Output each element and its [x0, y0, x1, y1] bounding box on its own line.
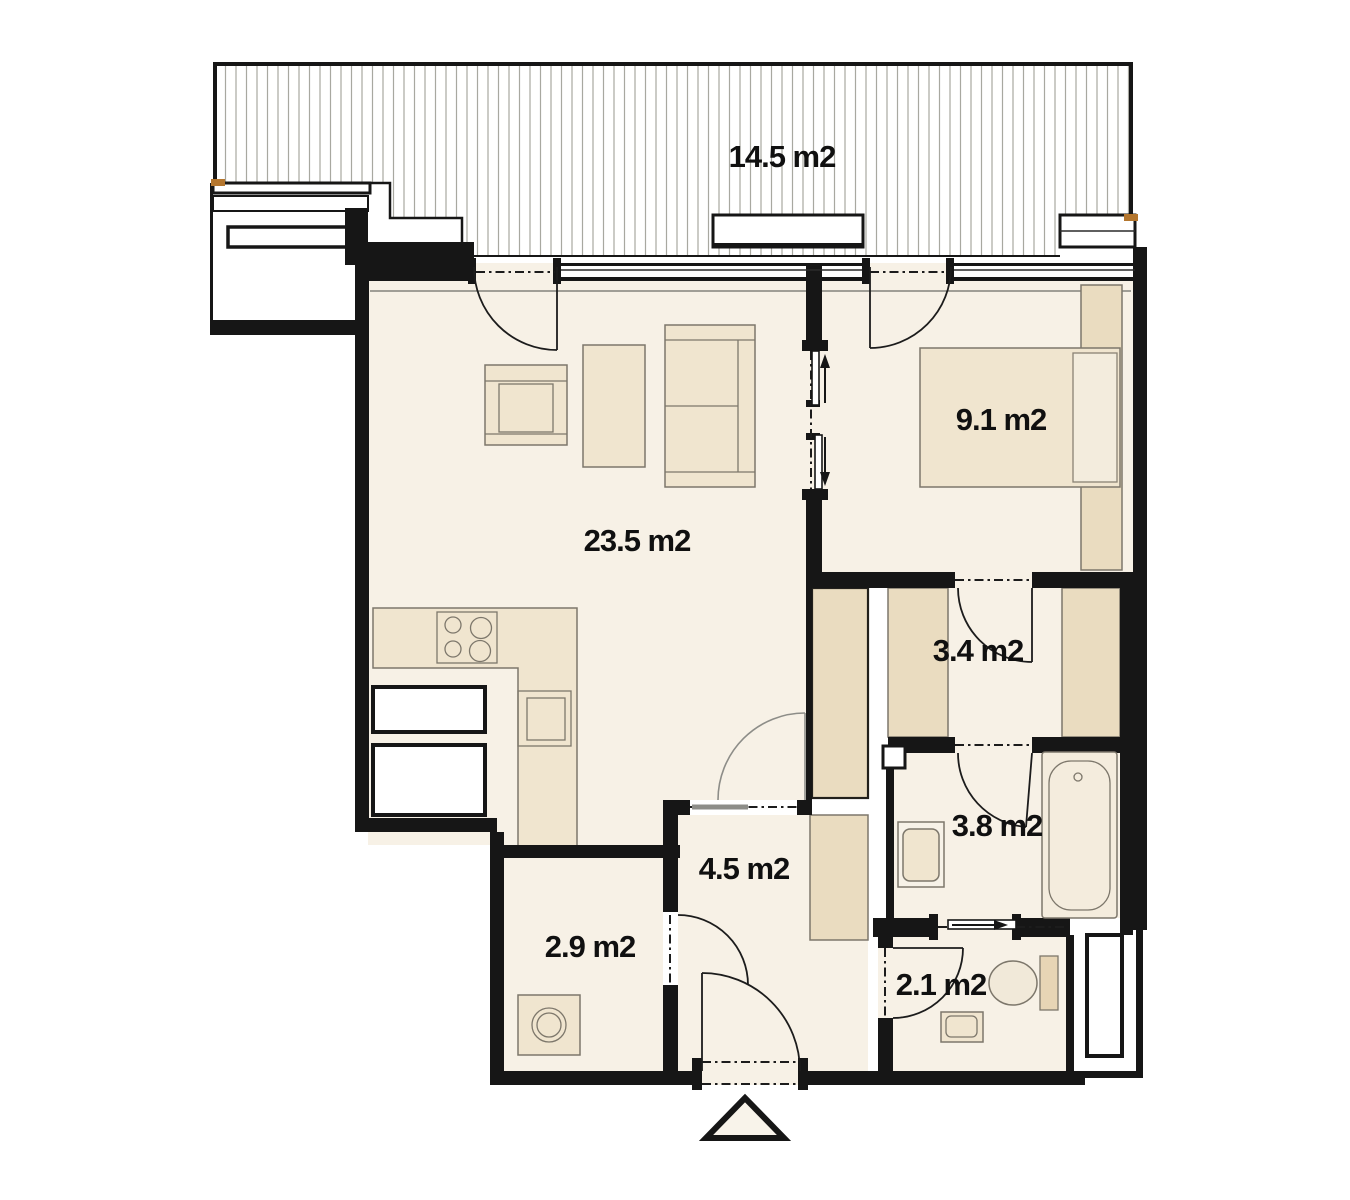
- utility-room-area-label: 2.9 m2: [545, 929, 636, 964]
- hall-area-label: 4.5 m2: [699, 851, 790, 886]
- toilet: [989, 956, 1058, 1010]
- terrace-parapet-bottom: [713, 243, 863, 247]
- bedroom-window-band: [1060, 214, 1138, 247]
- bathroom-area-label: 3.8 m2: [952, 808, 1043, 843]
- terrace-parapet: [713, 215, 863, 247]
- wardrobe-living-strip: [812, 588, 868, 798]
- neighbor-band-a: [213, 183, 370, 193]
- washbasin: [898, 822, 944, 887]
- washing-machine: [518, 995, 580, 1055]
- sofa: [665, 325, 755, 487]
- bathroom-pier: [883, 746, 905, 768]
- sill-mark-right: [1124, 214, 1138, 221]
- neighbor-inner-rect: [228, 227, 353, 247]
- neighbor-pier: [345, 208, 368, 265]
- bedroom-area-label: 9.1 m2: [956, 402, 1047, 437]
- bathtub: [1042, 752, 1117, 918]
- terrace-area-label: 14.5 m2: [729, 139, 836, 174]
- window-bedroom: [950, 263, 1135, 281]
- wardrobe-hall: [810, 815, 868, 940]
- closet-area-label: 3.4 m2: [933, 633, 1024, 668]
- neighbor-band-b: [213, 196, 368, 211]
- pillow: [1073, 353, 1117, 482]
- neighbor-bottom-wall: [213, 320, 370, 335]
- floor-plan-page: 14.5 m2: [0, 0, 1350, 1200]
- niche-lower: [373, 745, 485, 815]
- wc-area-label: 2.1 m2: [896, 967, 987, 1002]
- threshold-entrance: [700, 1060, 800, 1085]
- floor-plan-drawing: 14.5 m2: [0, 0, 1350, 1200]
- entrance-marker: [706, 1098, 784, 1138]
- neighbor-step-wall: [368, 242, 474, 263]
- niche-upper: [373, 687, 485, 732]
- wardrobe-closet-right: [1062, 588, 1120, 737]
- armchair: [485, 365, 567, 445]
- coffee-table: [583, 345, 645, 467]
- living-room-area-label: 23.5 m2: [584, 523, 691, 558]
- shaft: [1087, 935, 1122, 1056]
- sill-mark-left: [211, 179, 225, 186]
- wc-cabinet: [941, 1012, 983, 1042]
